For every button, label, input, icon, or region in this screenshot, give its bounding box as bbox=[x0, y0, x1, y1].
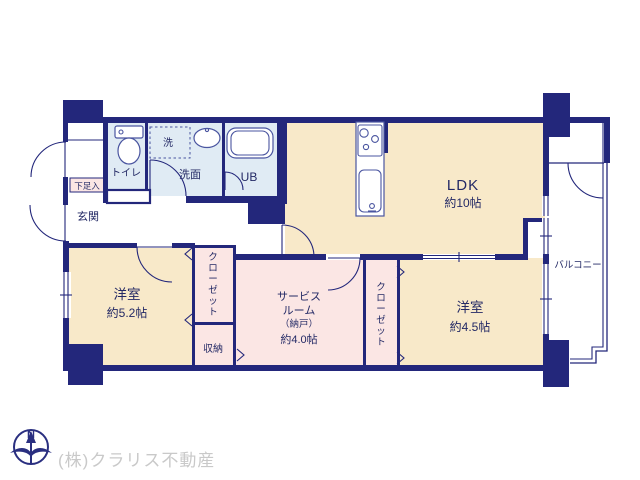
service-room-label-1: サービス bbox=[277, 290, 321, 303]
bedroom45-size: 約4.5帖 bbox=[450, 319, 491, 334]
bedroom52-size: 約5.2帖 bbox=[107, 305, 148, 320]
ldk-size: 約10帖 bbox=[444, 195, 481, 210]
closet-right-label: クローゼット bbox=[376, 282, 386, 348]
ldk-label: LDK bbox=[447, 177, 479, 194]
shoe-cabinet bbox=[107, 190, 150, 203]
bathtub-icon bbox=[227, 128, 273, 158]
pillar-top-right bbox=[543, 93, 570, 137]
balcony-railing bbox=[549, 123, 607, 363]
sink-icon bbox=[194, 128, 220, 147]
closet-left-label: クローゼット bbox=[208, 252, 218, 318]
service-room-label-2: ルーム bbox=[283, 304, 316, 317]
storage-label: 収納 bbox=[203, 342, 223, 355]
pillar-bottom-right bbox=[543, 340, 569, 387]
compass-north-label: N bbox=[27, 429, 35, 441]
service-room-size: 約4.0帖 bbox=[280, 332, 317, 346]
pillar-bottom-left bbox=[68, 344, 103, 385]
laundry-label: 洗 bbox=[163, 137, 173, 149]
toilet-icon bbox=[115, 126, 143, 164]
bedroom45-label: 洋室 bbox=[457, 299, 484, 315]
floorplan-drawing: LDK 約10帖 洋室 約5.2帖 洋室 約4.5帖 サービス ルーム （納戸）… bbox=[0, 0, 640, 480]
toilet-label: トイレ bbox=[111, 168, 141, 179]
pillar-top-left bbox=[63, 100, 103, 123]
washroom-label: 洗面 bbox=[179, 168, 201, 181]
shoe-box-label: 下足入 bbox=[74, 181, 100, 191]
bedroom52-label: 洋室 bbox=[114, 286, 141, 302]
company-name: (株)クラリス不動産 bbox=[58, 451, 215, 470]
service-room-label-3: （納戸） bbox=[280, 318, 318, 330]
kitchen-icon bbox=[356, 122, 384, 216]
entrance-label: 玄関 bbox=[77, 209, 99, 223]
floorplan-canvas: LDK 約10帖 洋室 約5.2帖 洋室 約4.5帖 サービス ルーム （納戸）… bbox=[0, 0, 640, 480]
bath-label: UB bbox=[241, 170, 258, 184]
balcony-label: バルコニー bbox=[554, 260, 601, 271]
compass: N bbox=[10, 429, 52, 464]
ldk-floor bbox=[285, 120, 545, 258]
